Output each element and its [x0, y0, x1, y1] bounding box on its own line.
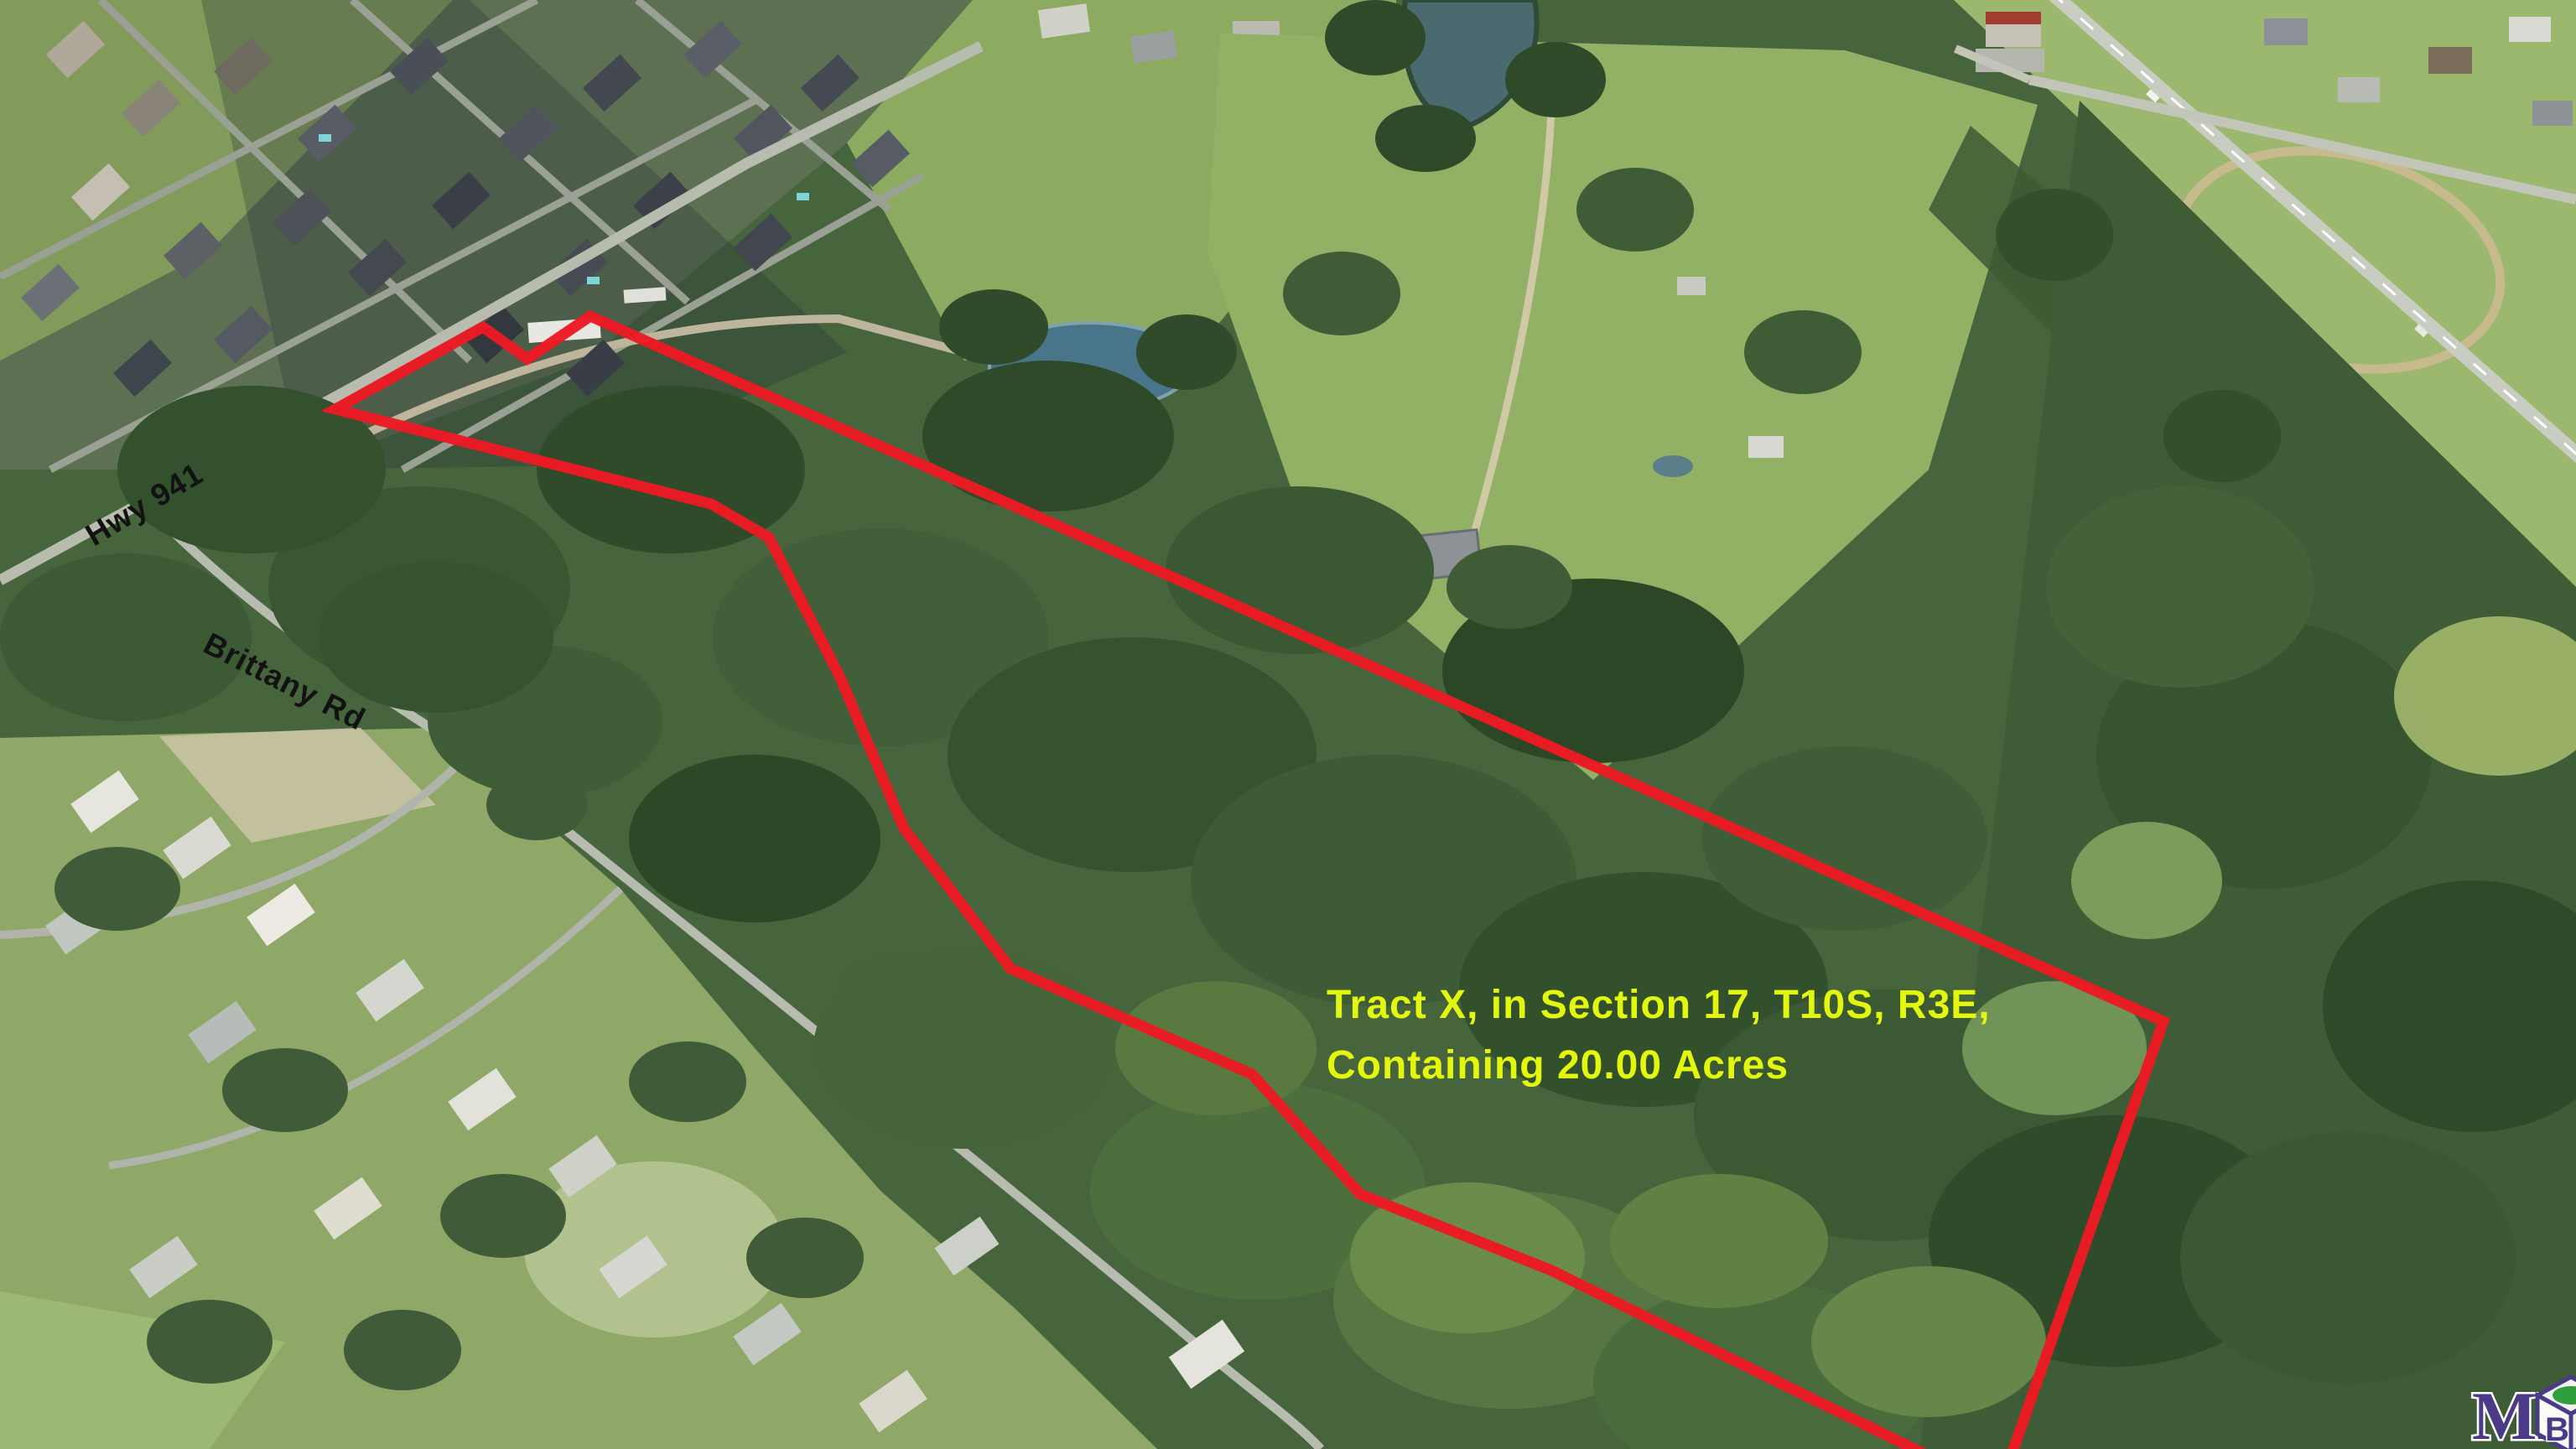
house: [2509, 17, 2551, 42]
pool: [587, 277, 600, 284]
house: [2532, 101, 2573, 126]
aerial-photo: Hwy 941 Brittany Rd Tract X, in Section …: [0, 0, 2576, 1449]
shed: [1748, 436, 1784, 458]
pool: [797, 193, 809, 200]
house: [2428, 47, 2472, 74]
cube-letter-b: B: [2545, 1411, 2569, 1448]
pool: [319, 134, 331, 142]
mls-watermark: MLS B X: [2472, 1377, 2576, 1449]
aerial-photo-canvas: Hwy 941 Brittany Rd Tract X, in Section …: [0, 0, 2576, 1449]
store-roof: [1986, 12, 2041, 24]
small-pond: [1653, 455, 1693, 477]
shed: [1677, 277, 1706, 295]
tract-description-line2: Containing 20.00 Acres: [1327, 1043, 1789, 1088]
house: [2338, 77, 2380, 102]
house: [2264, 18, 2308, 45]
tract-description-line1: Tract X, in Section 17, T10S, R3E,: [1327, 983, 1991, 1027]
